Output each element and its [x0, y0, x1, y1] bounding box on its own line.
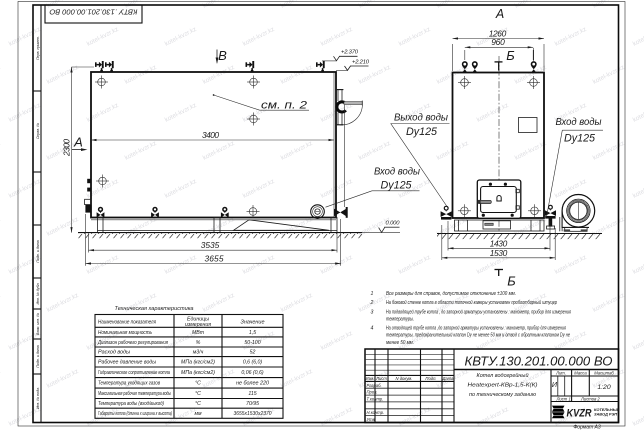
svg-text:1:20: 1:20: [597, 384, 610, 391]
svg-text:Максимальная рабочая температу: Максимальная рабочая температура воды: [98, 391, 171, 397]
svg-text:Все размеры для справок, допус: Все размеры для справок, допустимое откл…: [386, 291, 516, 297]
svg-text:KVZR: KVZR: [567, 408, 592, 420]
svg-text:Подп. и дата: Подп. и дата: [36, 240, 40, 263]
svg-text:0,6 (6,0): 0,6 (6,0): [243, 360, 263, 366]
svg-text:Выход воды: Выход воды: [394, 112, 448, 123]
svg-text:Значение: Значение: [241, 320, 265, 326]
svg-text:Перв. примен.: Перв. примен.: [36, 36, 40, 60]
svg-text:°С: °С: [195, 381, 201, 387]
svg-text:мм: мм: [194, 411, 202, 417]
svg-text:Температура уходящих газов: Температура уходящих газов: [98, 381, 160, 387]
svg-text:1430: 1430: [490, 238, 508, 248]
svg-text:по техническому заданию: по техническому заданию: [469, 392, 536, 398]
svg-text:960: 960: [491, 37, 505, 47]
svg-text:0.000: 0.000: [386, 221, 401, 227]
svg-text:Расход воды: Расход воды: [98, 350, 130, 356]
svg-text:Листов 2: Листов 2: [580, 396, 600, 401]
svg-text:Пров.: Пров.: [367, 390, 378, 395]
svg-text:Котел водогрейный: Котел водогрейный: [477, 372, 529, 379]
svg-text:50-100: 50-100: [244, 340, 260, 346]
svg-text:Вход воды: Вход воды: [374, 167, 420, 178]
svg-text:Heatexpert-КВр-1,5-К(К): Heatexpert-КВр-1,5-К(К): [468, 383, 538, 389]
svg-text:0,06 (0,6): 0,06 (0,6): [241, 370, 263, 376]
svg-text:На отводящей трубе котла ,до з: На отводящей трубе котла ,до запорной ар…: [386, 324, 566, 331]
svg-text:70/95: 70/95: [246, 401, 259, 407]
svg-text:3655х1530х2370: 3655х1530х2370: [234, 411, 272, 417]
svg-text:Dy125: Dy125: [406, 126, 438, 138]
svg-text:Взам. инв. №: Взам. инв. №: [36, 313, 40, 335]
svg-text:Температура воды (вход/выход): Температура воды (вход/выход): [98, 401, 164, 407]
svg-text:Подп.: Подп.: [425, 376, 436, 381]
svg-text:На боковой стенке котла в обла: На боковой стенке котла в области топочн…: [386, 299, 557, 306]
svg-text:не более 220: не более 220: [236, 381, 269, 387]
svg-text:ЗАВОД РЭП: ЗАВОД РЭП: [594, 412, 617, 417]
svg-text:Формат А3: Формат А3: [573, 425, 601, 430]
svg-text:1530: 1530: [490, 248, 508, 258]
svg-text:+2.210: +2.210: [352, 59, 370, 65]
svg-text:Dy125: Dy125: [564, 133, 596, 145]
svg-text:Dy125: Dy125: [381, 180, 413, 192]
svg-text:Утв.: Утв.: [367, 417, 377, 422]
svg-text:Б: Б: [506, 48, 515, 63]
svg-text:Дата: Дата: [441, 376, 454, 381]
svg-text:Лист 1: Лист 1: [556, 396, 571, 401]
svg-text:Инв. № подл.: Инв. № подл.: [36, 387, 40, 409]
svg-text:Т.контр.: Т.контр.: [367, 396, 384, 401]
svg-text:Справ. №: Справ. №: [36, 123, 40, 139]
svg-text:115: 115: [248, 391, 256, 397]
svg-text:3: 3: [371, 309, 374, 315]
svg-text:см. п. 2: см. п. 2: [261, 100, 307, 112]
svg-text:Разраб.: Разраб.: [367, 383, 382, 388]
svg-text:А: А: [495, 7, 504, 21]
svg-text:3535: 3535: [201, 240, 220, 250]
svg-text:МПа (кгс/см2): МПа (кгс/см2): [181, 360, 215, 366]
svg-text:Б: Б: [507, 274, 516, 289]
svg-text:КВТУ.130.201.00.000 ВО: КВТУ.130.201.00.000 ВО: [465, 354, 613, 369]
svg-text:3655: 3655: [205, 253, 224, 263]
svg-text:Рабочее давление воды: Рабочее давление воды: [98, 360, 156, 366]
svg-text:Техническая характеристика: Техническая характеристика: [115, 306, 194, 312]
svg-text:Изм.: Изм.: [366, 376, 375, 381]
svg-text:3400: 3400: [202, 130, 219, 140]
svg-text:КВТУ .130.201.00.000 ВО: КВТУ .130.201.00.000 ВО: [49, 7, 137, 16]
svg-text:Номинальная мощность: Номинальная мощность: [98, 330, 152, 336]
svg-text:+2.370: +2.370: [341, 50, 359, 56]
svg-text:измерения: измерения: [185, 322, 211, 328]
svg-text:52: 52: [250, 350, 256, 356]
svg-text:И: И: [552, 380, 558, 389]
svg-text:менее 50 мм.: менее 50 мм.: [386, 340, 414, 346]
svg-text:Габариты котла (длинна х ширин: Габариты котла (длинна х ширина х высота…: [98, 411, 172, 417]
svg-text:температуры.: температуры.: [386, 317, 414, 323]
svg-text:°С: °С: [195, 391, 201, 397]
svg-text:%: %: [196, 340, 201, 346]
svg-text:2300: 2300: [62, 139, 72, 157]
svg-text:Подп. и дата: Подп. и дата: [36, 345, 40, 368]
svg-text:Масштаб: Масштаб: [594, 371, 614, 376]
svg-text:Наименование показателя: Наименование показателя: [98, 320, 156, 326]
svg-text:Лит.: Лит.: [555, 371, 566, 376]
svg-text:2: 2: [370, 300, 374, 306]
svg-text:МВт: МВт: [192, 330, 205, 336]
svg-text:1,5: 1,5: [249, 330, 256, 336]
svg-text:Гидравлическое сопротивление к: Гидравлическое сопротивление котла: [98, 370, 170, 376]
svg-text:4: 4: [371, 325, 374, 331]
svg-text:На подводящей трубе котла ,: На подводящей трубе котла , до запорной …: [386, 308, 571, 315]
svg-text:МПа (кгс/см2): МПа (кгс/см2): [181, 370, 215, 376]
svg-text:А: А: [73, 135, 83, 150]
svg-text:Н.контр.: Н.контр.: [367, 410, 385, 415]
svg-text:Диапазон рабочего регулировани: Диапазон рабочего регулирования: [97, 340, 168, 346]
svg-text:°С: °С: [195, 401, 201, 407]
svg-text:1: 1: [371, 291, 374, 297]
svg-text:м3/ч: м3/ч: [193, 350, 204, 356]
svg-text:Масса: Масса: [574, 371, 587, 376]
svg-text:Лист: Лист: [375, 376, 387, 381]
svg-text:Вход воды: Вход воды: [556, 117, 602, 128]
svg-text:В: В: [218, 48, 227, 63]
svg-text:N докум.: N докум.: [396, 376, 413, 381]
svg-text:Инв. № дубл.: Инв. № дубл.: [36, 282, 40, 304]
svg-text:температуры, предохранительный: температуры, предохранительный клапан Dу…: [386, 332, 570, 339]
